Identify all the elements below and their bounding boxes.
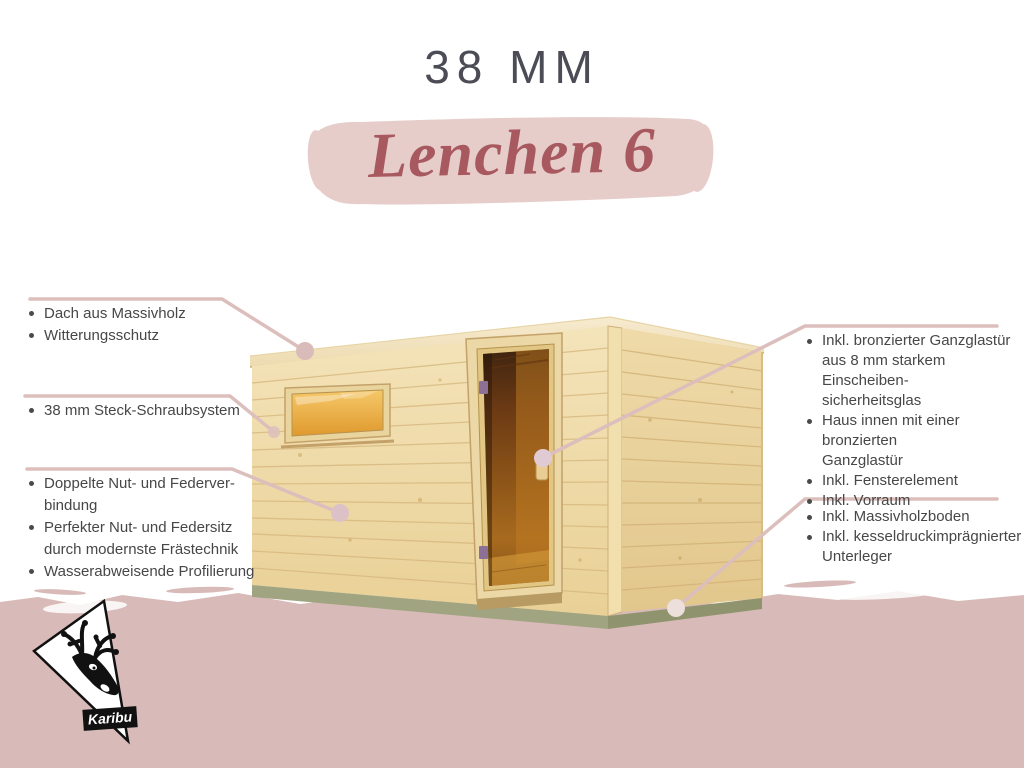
feature-list: Dach aus Massivholz Witterungsschutz — [28, 303, 278, 347]
callout-wallsystem-text: 38 mm Steck-Schraubsystem — [28, 400, 298, 422]
feature-item: Doppelte Nut- und Federver- bindung — [28, 473, 288, 517]
callout-dot-floor — [667, 599, 685, 617]
feature-item: Perfekter Nut- und Federsitz durch moder… — [28, 517, 288, 561]
feature-item: Wasserabweisende Profilierung — [28, 561, 288, 583]
feature-item: Inkl. Massivholzboden — [806, 507, 1022, 527]
feature-list: Doppelte Nut- und Federver- bindung Perf… — [28, 473, 288, 583]
product-sheet: Karibu 38 MM Lenchen 6 Dach aus Massivho… — [0, 0, 1024, 768]
feature-list: 38 mm Steck-Schraubsystem — [28, 400, 298, 422]
callout-dot-door — [534, 449, 552, 467]
feature-item: Inkl. Fensterelement — [806, 471, 1022, 491]
feature-item: Haus innen mit einer bronzierten Ganzgla… — [806, 411, 1022, 471]
door-hinge-bottom — [479, 546, 488, 559]
feature-item: 38 mm Steck-Schraubsystem — [28, 400, 298, 422]
feature-item: Dach aus Massivholz — [28, 303, 278, 325]
feature-list: Inkl. bronzierter Ganzglastür aus 8 mm s… — [806, 331, 1022, 511]
sauna-glass-door — [466, 333, 562, 610]
thickness-title: 38 MM — [0, 40, 1024, 94]
logo-wordmark: Karibu — [87, 708, 133, 727]
corner-board — [608, 326, 622, 616]
feature-item: Inkl. bronzierter Ganzglastür aus 8 mm s… — [806, 331, 1022, 411]
door-hinge-top — [479, 381, 488, 394]
feature-item: Inkl. kesseldruckimprägnierter Unterlege… — [806, 527, 1022, 567]
feature-list: Inkl. Massivholzboden Inkl. kesseldrucki… — [806, 507, 1022, 567]
callout-door-text: Inkl. bronzierter Ganzglastür aus 8 mm s… — [806, 331, 1022, 511]
callout-dot-roof — [296, 342, 314, 360]
sauna-illustration — [250, 317, 764, 629]
callout-roof-text: Dach aus Massivholz Witterungsschutz — [28, 303, 278, 347]
callout-joinery-text: Doppelte Nut- und Federver- bindung Perf… — [28, 473, 288, 583]
callout-floor-text: Inkl. Massivholzboden Inkl. kesseldrucki… — [806, 507, 1022, 567]
sauna-side-wall — [622, 328, 762, 612]
callout-dot-joinery — [331, 504, 349, 522]
callout-dot-wallsystem — [268, 426, 280, 438]
feature-item: Witterungsschutz — [28, 325, 278, 347]
